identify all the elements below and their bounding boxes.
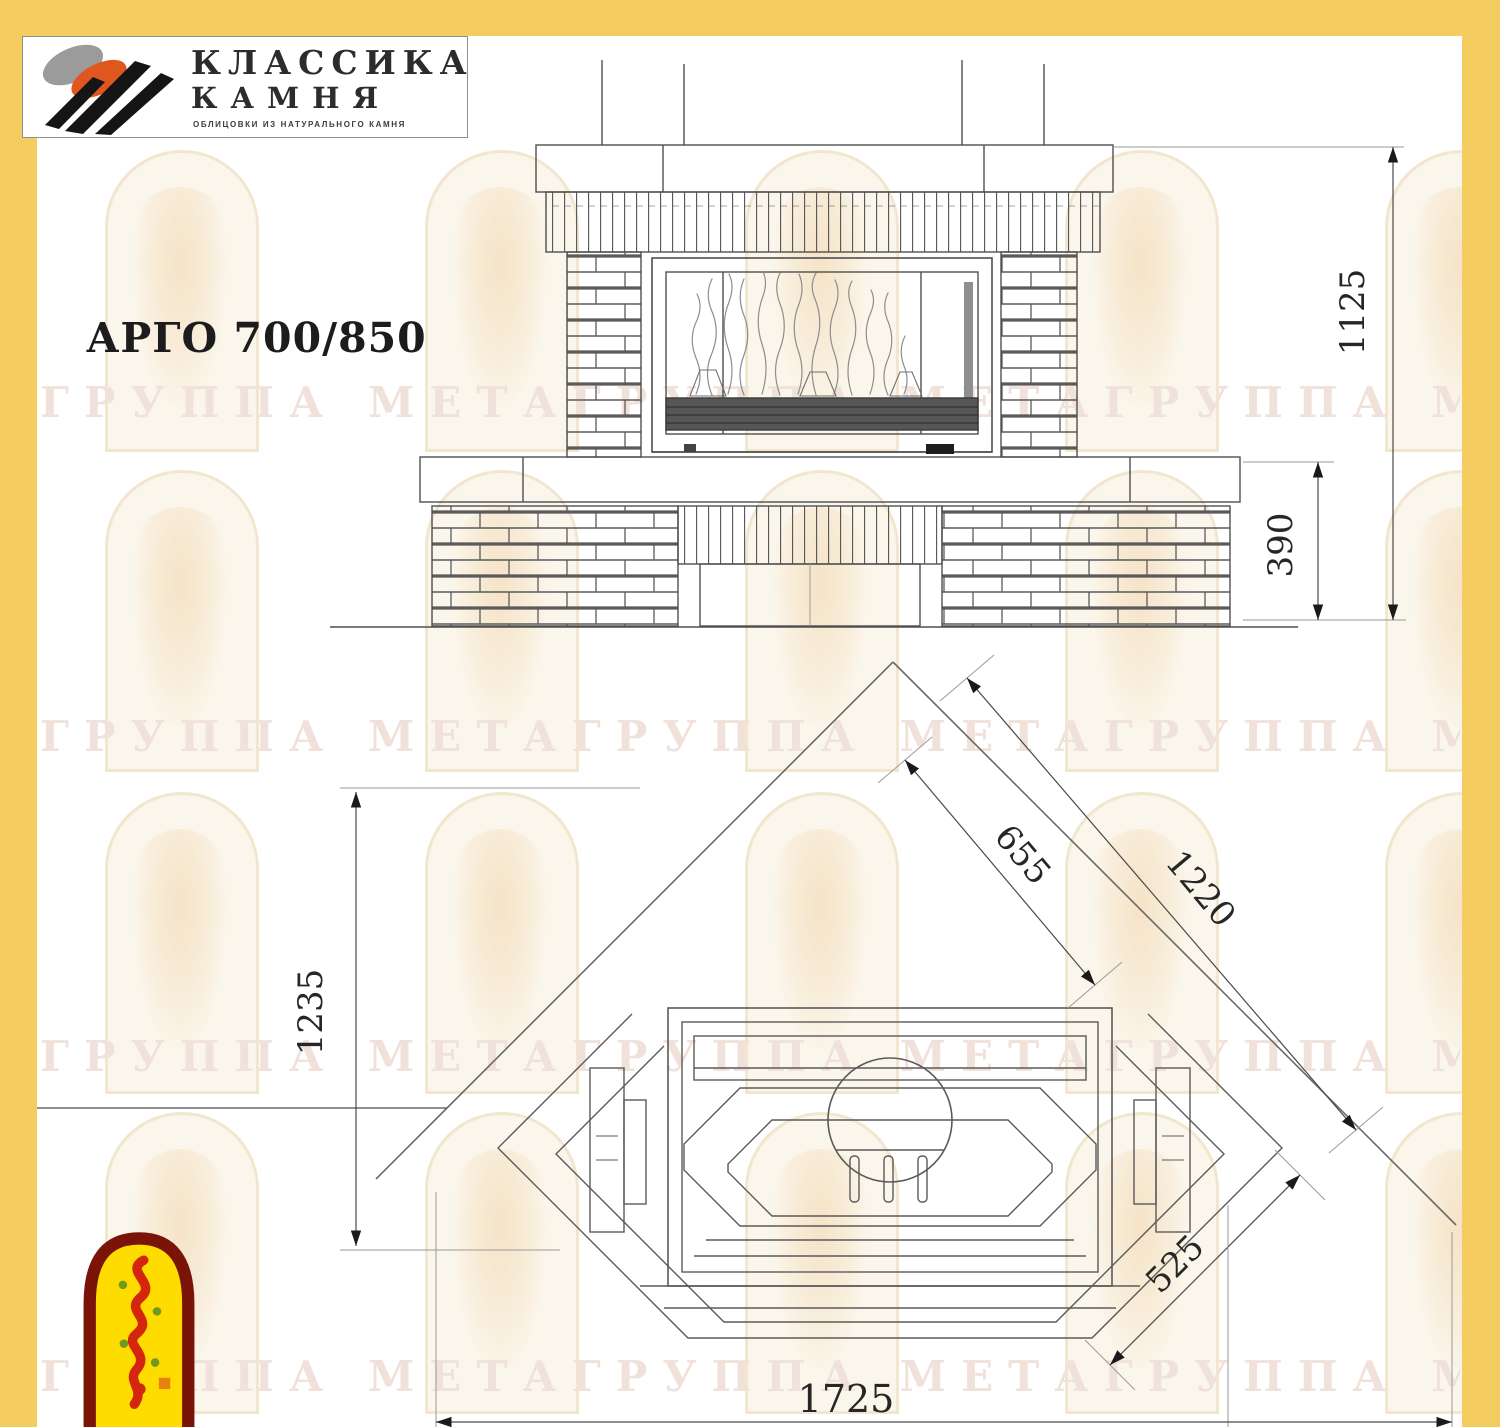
- emblem-green-dot: [119, 1281, 128, 1290]
- page-title: АРГО 700/850: [86, 314, 427, 362]
- plan-view: [36, 662, 1456, 1338]
- emblem-green-dot: [120, 1339, 129, 1348]
- base-center-slats: [678, 506, 942, 564]
- brand-logo-art: [31, 39, 186, 135]
- front-elevation-view: [330, 60, 1298, 627]
- dim-label-1725: 1725: [798, 1377, 895, 1421]
- frame-border-right: [1462, 0, 1500, 1427]
- plan-view-dimensions: 1235 655 1220 525 1725: [291, 655, 1452, 1427]
- flames: [692, 272, 907, 395]
- chimney-lines: [602, 60, 1044, 145]
- emblem-red-dot: [134, 1383, 145, 1394]
- insert-casing-outer: [668, 1008, 1112, 1286]
- soldier-stone-band: [546, 192, 1100, 252]
- firebox-octagon-outer: [684, 1088, 1096, 1226]
- base-right-bricks: [942, 506, 1230, 626]
- fireplace-technical-drawing: 1125 390: [0, 0, 1500, 1427]
- bench-slab: [420, 457, 1240, 502]
- emblem-orange-dot: [159, 1378, 170, 1389]
- dim-label-1125: 1125: [1333, 269, 1373, 356]
- emblem-green-dot: [153, 1307, 162, 1316]
- front-steps: [640, 1240, 1140, 1308]
- brand-tagline: ОБЛИЦОВКИ ИЗ НАТУРАЛЬНОГО КАМНЯ: [193, 120, 406, 129]
- hearth-grill: [666, 398, 978, 430]
- brand-name-line1: КЛАССИКА: [191, 43, 474, 82]
- dim-label-655: 655: [986, 817, 1058, 892]
- dim-label-1220: 1220: [1157, 843, 1243, 935]
- base-left-bricks: [432, 506, 678, 626]
- wall-lines: [36, 662, 1456, 1225]
- dim-label-390: 390: [1261, 513, 1301, 578]
- emblem-green-dot: [151, 1358, 160, 1367]
- frame-border-left: [0, 0, 37, 1427]
- firebox-foot: [684, 444, 696, 452]
- catalog-page: ГРУППА МЕТАГРУППА МЕТАГРУППА МЕТА ГРУППА…: [0, 0, 1500, 1427]
- brand-logo: КЛАССИКА КАМНЯ ОБЛИЦОВКИ ИЗ НАТУРАЛЬНОГО…: [22, 36, 468, 138]
- firebox-handle: [926, 444, 954, 454]
- left-brick-pillar: [567, 252, 641, 457]
- brand-name-line2: КАМНЯ: [191, 81, 391, 115]
- frame-border-top: [0, 0, 1500, 36]
- right-brick-pillar: [1001, 252, 1077, 457]
- mantel-shelf: [536, 145, 1113, 192]
- firebird-emblem: [78, 1228, 200, 1427]
- dim-label-525: 525: [1138, 1227, 1212, 1301]
- dim-line-1220: [967, 678, 1356, 1130]
- dim-label-1235: 1235: [291, 969, 331, 1056]
